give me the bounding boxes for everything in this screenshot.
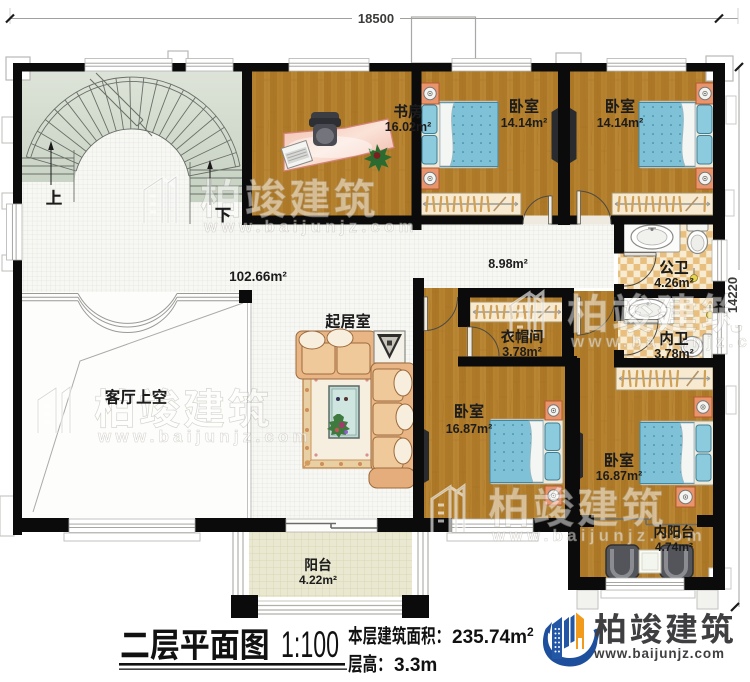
- svg-text:16.02m²: 16.02m²: [385, 120, 432, 134]
- svg-text:www.baijunjz.com: www.baijunjz.com: [203, 217, 418, 236]
- svg-text:14.14m²: 14.14m²: [501, 116, 548, 130]
- svg-text:3.78m²: 3.78m²: [654, 347, 694, 361]
- svg-text:16.87m²: 16.87m²: [446, 422, 493, 436]
- svg-text:16.87m²: 16.87m²: [596, 469, 643, 483]
- svg-text:4.22m²: 4.22m²: [299, 573, 337, 587]
- svg-text:1:100: 1:100: [281, 625, 339, 666]
- svg-text:3.3m: 3.3m: [394, 655, 437, 676]
- svg-text:18500: 18500: [358, 11, 394, 26]
- svg-text:www.baijunjz.com: www.baijunjz.com: [593, 646, 725, 661]
- svg-text:4.74m²: 4.74m²: [655, 540, 693, 554]
- svg-text:www.baijunjz.com: www.baijunjz.com: [97, 427, 312, 446]
- svg-text:3.78m²: 3.78m²: [502, 345, 542, 359]
- svg-text:235.74m2: 235.74m2: [452, 625, 534, 648]
- svg-text:14220: 14220: [725, 277, 740, 313]
- svg-text:102.66m²: 102.66m²: [229, 269, 287, 284]
- svg-text:8.98m²: 8.98m²: [488, 257, 528, 271]
- svg-text:14.14m²: 14.14m²: [597, 116, 644, 130]
- svg-text:4.26m²: 4.26m²: [654, 276, 694, 290]
